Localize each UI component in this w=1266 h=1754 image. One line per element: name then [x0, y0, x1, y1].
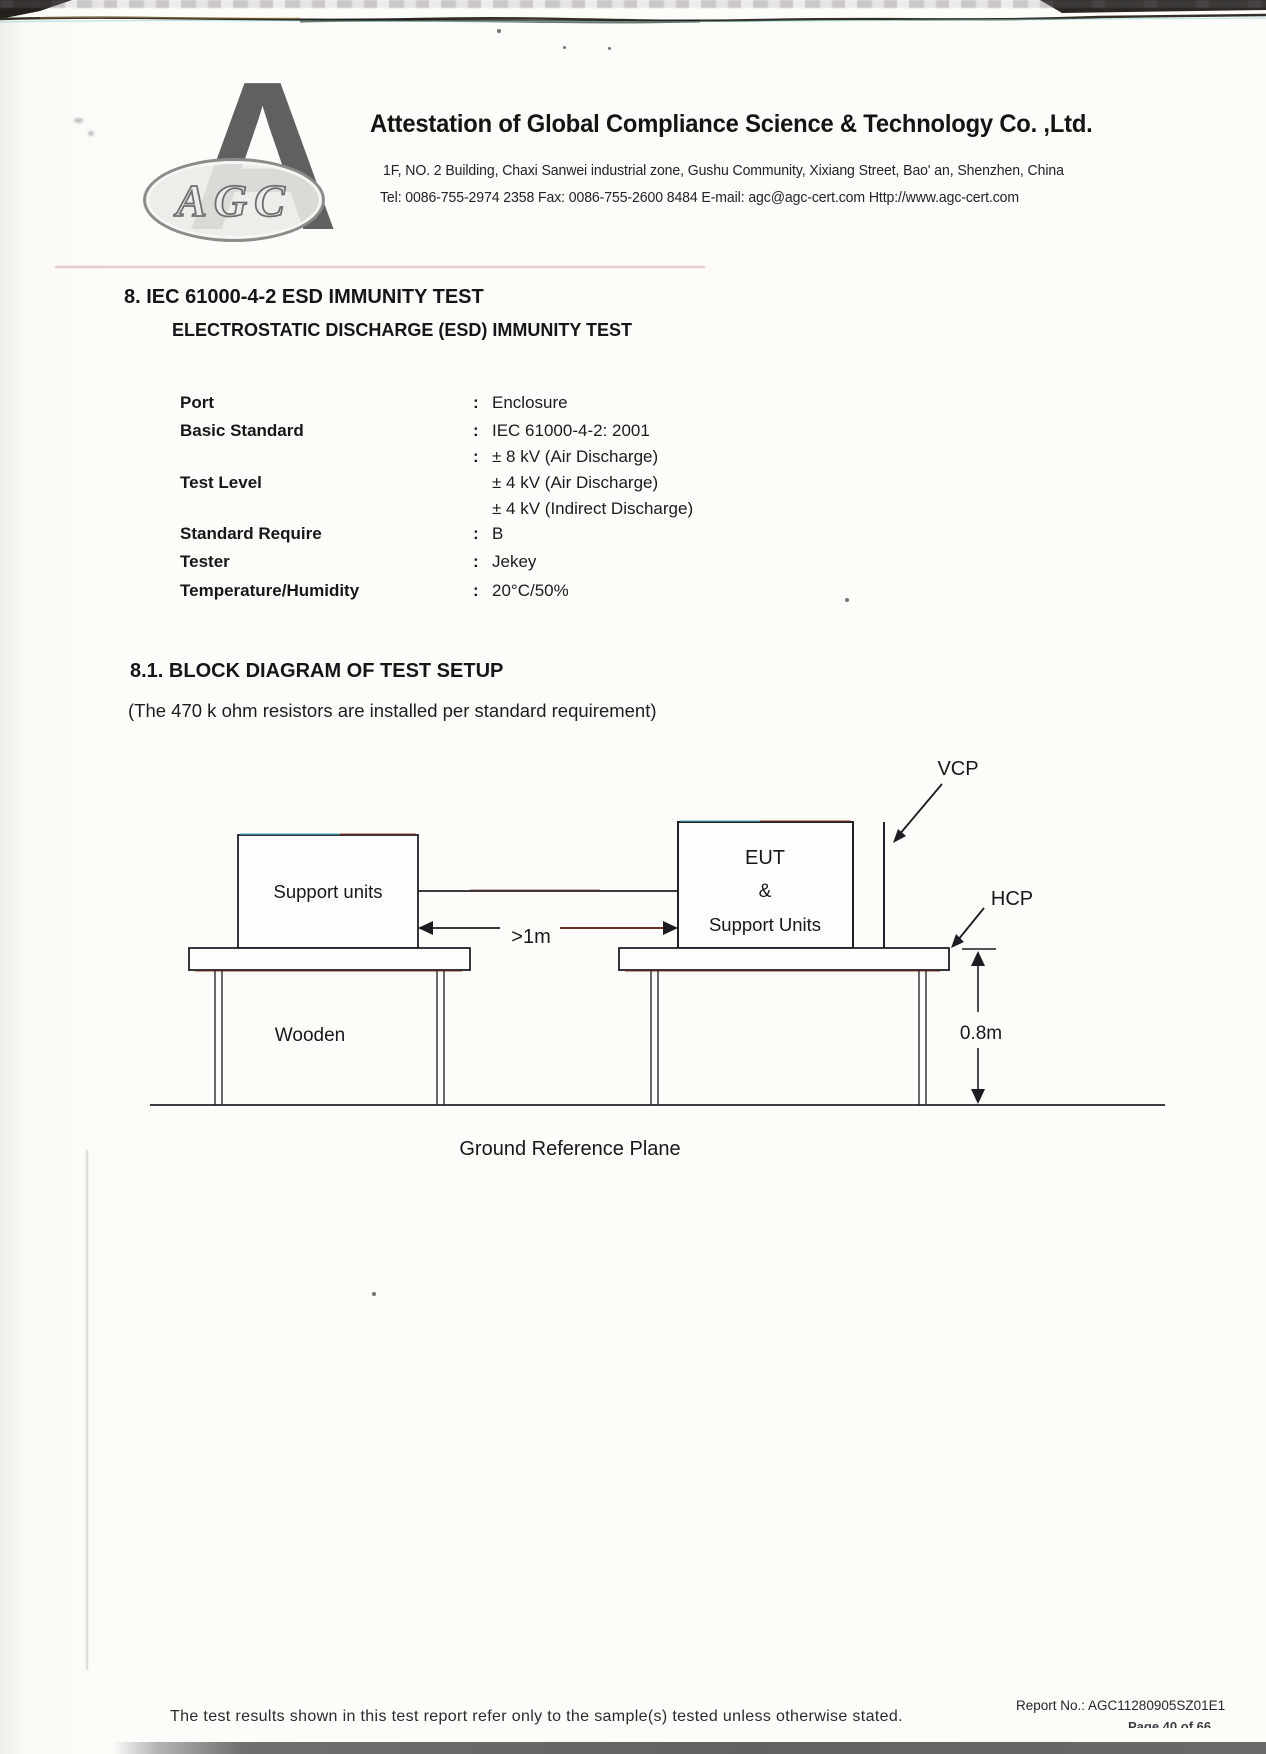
scan-speck	[608, 47, 611, 50]
param-row-test-level-2: Test Level± 4 kV (Air Discharge)	[180, 473, 880, 493]
eut-label: EUT	[745, 847, 785, 869]
param-value: ± 4 kV (Air Discharge)	[492, 473, 658, 492]
param-value: IEC 61000-4-2: 2001	[492, 421, 650, 440]
param-row-temperature-humidity: Temperature/Humidity:20°C/50%	[180, 581, 880, 601]
wooden-label: Wooden	[275, 1025, 345, 1046]
section8-subtitle: ELECTROSTATIC DISCHARGE (ESD) IMMUNITY T…	[172, 320, 632, 341]
scan-streak	[86, 1150, 88, 1670]
vcp-label: VCP	[937, 758, 978, 780]
scan-smudge	[74, 118, 83, 123]
param-value: Enclosure	[492, 393, 568, 412]
company-address: 1F, NO. 2 Building, Chaxi Sanwei industr…	[383, 163, 1149, 179]
company-contact: Tel: 0086-755-2974 2358 Fax: 0086-755-26…	[380, 190, 1146, 206]
distance-dimension: >1m	[418, 921, 678, 948]
param-colon: :	[473, 552, 492, 572]
param-label: Test Level	[180, 473, 473, 493]
ground-label: Ground Reference Plane	[459, 1138, 680, 1160]
distance-label: >1m	[511, 926, 550, 948]
param-value: ± 8 kV (Air Discharge)	[492, 447, 658, 466]
param-value: 20°C/50%	[492, 581, 569, 600]
param-label: Tester	[180, 552, 473, 572]
test-setup-diagram: VCP Support units EUT & Support Units	[0, 640, 1266, 1200]
company-name: Attestation of Global Compliance Science…	[370, 110, 1149, 139]
header-separator-band	[0, 0, 1266, 8]
param-value: ± 4 kV (Indirect Discharge)	[492, 499, 693, 518]
eut-support-units-label: Support Units	[709, 914, 821, 935]
height-label: 0.8m	[960, 1023, 1002, 1044]
param-colon: :	[473, 421, 492, 441]
section8-title: 8. IEC 61000-4-2 ESD IMMUNITY TEST	[124, 286, 484, 309]
param-colon: :	[473, 524, 492, 544]
param-label: Basic Standard	[180, 421, 473, 441]
logo-oval: AGC	[143, 158, 325, 242]
param-row-port: Port:Enclosure	[180, 393, 880, 413]
eut-amp-label: &	[759, 881, 772, 902]
param-row-standard-require: Standard Require:B	[180, 524, 880, 544]
param-colon: :	[473, 447, 492, 467]
page-number-text: Page 40 of 66	[1128, 1719, 1248, 1728]
param-colon: :	[473, 581, 492, 601]
param-value: B	[492, 524, 503, 543]
right-table	[619, 948, 949, 1105]
height-dimension: 0.8m	[960, 949, 1002, 1104]
support-units-label: Support units	[273, 881, 382, 902]
left-table: Wooden	[189, 948, 470, 1105]
param-colon: :	[473, 393, 492, 413]
hcp-arrow	[951, 908, 984, 948]
param-row-basic-standard: Basic Standard:IEC 61000-4-2: 2001	[180, 421, 880, 441]
scanned-report-page: A AGC Attestation of Global Compliance S…	[0, 0, 1266, 1754]
scan-smudge	[88, 131, 94, 136]
footer-disclaimer: The test results shown in this test repo…	[170, 1708, 1000, 1726]
param-value: Jekey	[492, 552, 536, 571]
scan-bottom-bar	[112, 1742, 1266, 1754]
param-row-tester: Tester:Jekey	[180, 552, 880, 572]
page-number-fragment: Page 40 of 66	[1128, 1719, 1248, 1728]
scan-speck	[372, 1292, 376, 1296]
support-units-box: Support units	[238, 834, 418, 948]
eut-box: EUT & Support Units	[678, 821, 853, 948]
vcp-arrow	[893, 784, 942, 843]
param-label: Standard Require	[180, 524, 473, 544]
scan-speck	[497, 29, 501, 33]
scan-speck	[563, 46, 566, 49]
param-row-test-level-3: ± 4 kV (Indirect Discharge)	[180, 499, 880, 519]
logo-oval-text: AGC	[176, 174, 292, 227]
param-label: Temperature/Humidity	[180, 581, 473, 601]
hcp-label: HCP	[991, 888, 1033, 910]
report-number: Report No.: AGC11280905SZ01E1	[1016, 1698, 1266, 1713]
header-separator-tint	[55, 266, 705, 268]
param-row-test-level-1: :± 8 kV (Air Discharge)	[180, 447, 880, 467]
param-label: Port	[180, 393, 473, 413]
